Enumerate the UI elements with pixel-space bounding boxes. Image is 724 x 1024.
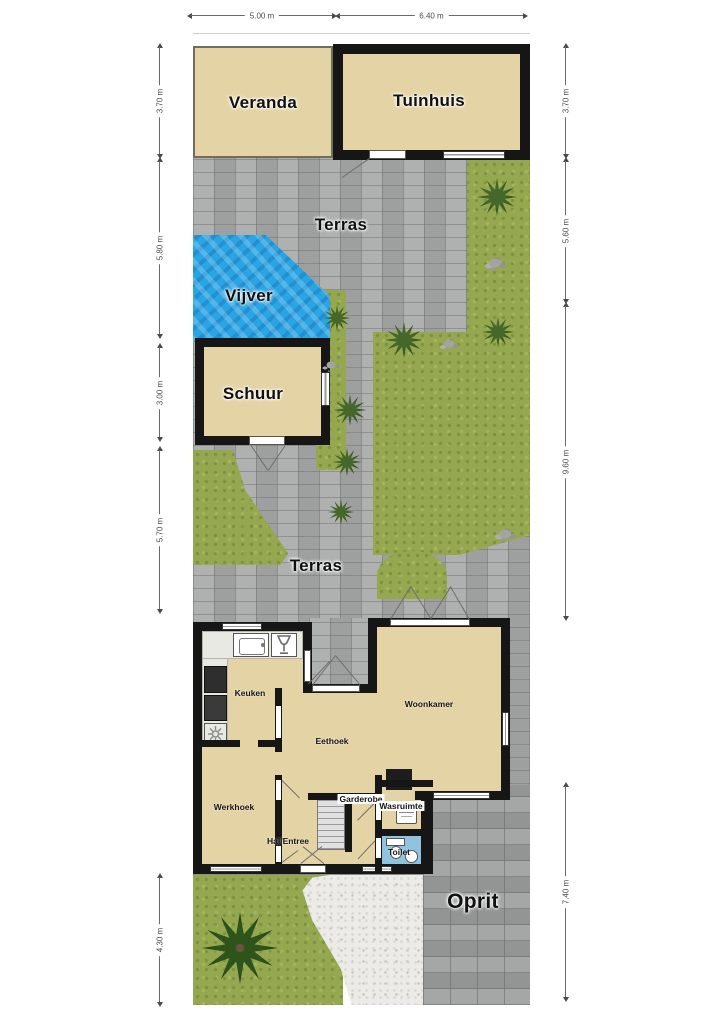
dim-left-2: 5.80 m <box>155 158 164 338</box>
label-toilet: Toilet <box>388 847 410 857</box>
dining-french-door <box>312 685 360 692</box>
label-wasruimte: Wasruimte <box>377 801 424 811</box>
label-terras-top: Terras <box>315 215 368 235</box>
laundry-basket-rim <box>399 812 414 813</box>
dim-label: 9.60 m <box>561 445 570 477</box>
rocks <box>499 530 511 539</box>
dim-label: 3.00 m <box>155 376 164 408</box>
toilet-door-opening <box>376 838 381 858</box>
dim-top-2: 6.40 m <box>336 11 527 20</box>
wall-house-left <box>193 622 202 874</box>
sink-icon <box>233 633 269 657</box>
fridge-icon <box>204 695 227 721</box>
workroom-window <box>210 866 262 872</box>
schuur-window <box>321 372 330 406</box>
garden-grass-mound <box>377 551 447 599</box>
wall-livingroom-left <box>368 618 377 693</box>
livingroom-window-right <box>502 712 509 746</box>
oven-icon <box>204 666 227 693</box>
wall-kitchen-south-left <box>202 740 240 747</box>
sink-tap <box>261 643 265 647</box>
label-schuur: Schuur <box>223 384 283 404</box>
kitchen-window <box>222 623 262 630</box>
livingroom-french-doors <box>390 619 470 626</box>
label-hal-entree: Hal/Entree <box>267 836 309 846</box>
wall-toilet-divider <box>375 829 433 836</box>
dim-label: 5.80 m <box>155 232 164 264</box>
dim-label: 3.70 m <box>561 85 570 117</box>
dim-label: 5.70 m <box>155 514 164 546</box>
label-veranda: Veranda <box>229 93 297 113</box>
dim-left-1: 3.70 m <box>155 44 164 158</box>
dim-right-1: 3.70 m <box>561 44 570 158</box>
kitchen-terrace-door <box>304 650 311 682</box>
dim-label: 3.70 m <box>155 85 164 117</box>
plot-boundary-line <box>193 33 530 34</box>
schuur-door <box>249 436 285 445</box>
dim-right-2: 5.60 m <box>561 158 570 303</box>
dim-left-3: 3.00 m <box>155 344 164 441</box>
hall-workroom-door-top <box>276 780 281 800</box>
dim-right-3: 9.60 m <box>561 303 570 620</box>
dim-label: 5.60 m <box>561 214 570 246</box>
label-vijver: Vijver <box>225 286 273 306</box>
tuinhuis-door <box>369 150 406 159</box>
tuinhuis-window <box>443 151 505 159</box>
rocks <box>444 340 454 348</box>
dim-top-1: 5.00 m <box>188 11 336 20</box>
label-woonkamer: Woonkamer <box>405 699 454 709</box>
label-keuken: Keuken <box>235 688 266 698</box>
rocks <box>327 362 336 369</box>
wall-utility-left <box>375 775 382 874</box>
hall-workroom-door-bottom <box>276 846 281 862</box>
label-eethoek: Eethoek <box>315 736 348 746</box>
floorplan-canvas: Veranda Tuinhuis Terras Vijver Schuur Te… <box>0 0 724 1024</box>
kitchen-dining-opening <box>276 706 281 738</box>
dim-label: 4.30 m <box>155 924 164 956</box>
label-terras-mid: Terras <box>290 556 343 576</box>
label-werkhoek: Werkhoek <box>214 802 254 812</box>
dim-label: 7.40 m <box>561 876 570 908</box>
label-tuinhuis: Tuinhuis <box>393 91 465 111</box>
laundry-basket-line <box>401 816 412 817</box>
label-oprit: Oprit <box>447 890 499 914</box>
dim-left-4: 5.70 m <box>155 447 164 613</box>
glass-icon <box>271 633 297 657</box>
rocks <box>489 259 501 268</box>
toilet-icon <box>386 838 405 846</box>
wall-livingroom-right <box>501 618 510 800</box>
dim-right-4: 7.40 m <box>561 783 570 1001</box>
front-door <box>300 865 326 873</box>
wall-utility-top <box>375 780 433 787</box>
dim-label: 5.00 m <box>245 11 279 20</box>
livingroom-window-bottom <box>433 792 490 799</box>
dim-left-5: 4.30 m <box>155 874 164 1006</box>
dim-label: 6.40 m <box>414 11 448 20</box>
